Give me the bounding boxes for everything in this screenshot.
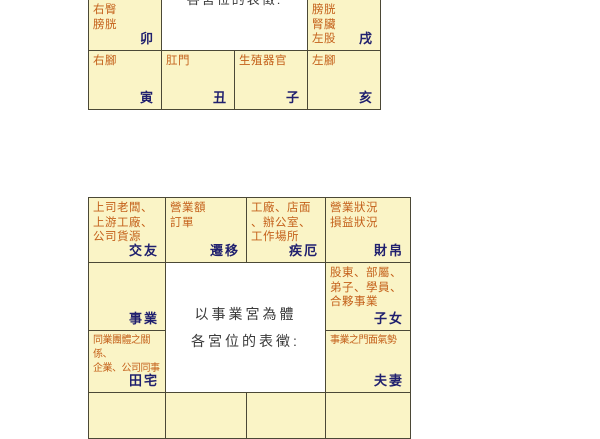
palace-cell-zi: 生殖器官 子 xyxy=(235,51,307,109)
chart-center-area-cut: 各宮位的表徵: xyxy=(162,0,307,50)
cell-content: 營業額 訂單 xyxy=(170,201,242,230)
palace-cell-jiaoyou: 上司老闆、 上游工廠、 公司貨源 交友 xyxy=(89,198,165,262)
branch-label-yin: 寅 xyxy=(140,87,155,106)
center-caption-line2: 各宮位的表徵: xyxy=(191,331,300,351)
palace-cell-tianzhai: 同業團體之關係、 企業、公司同事 田宅 xyxy=(89,331,165,392)
cell-content: 右腳 xyxy=(93,54,157,69)
career-palace-chart: 上司老闆、 上游工廠、 公司貨源 交友 營業額 訂單 遷移 工廠、店面 、辦公室… xyxy=(88,197,411,439)
cell-content: 事業之門面氣勢 xyxy=(330,334,406,348)
palace-cell-xu: 膀胱 腎臟 左股 戌 xyxy=(308,0,380,50)
cell-content: 股東、部屬、 弟子、學員、 合夥事業 xyxy=(330,266,406,310)
cell-content: 左腳 xyxy=(312,54,376,69)
palace-label-shiye: 事業 xyxy=(129,308,159,327)
palace-label-jiaoyou: 交友 xyxy=(129,240,159,259)
center-caption-cut: 各宮位的表徵: xyxy=(162,0,307,7)
cell-content: 生殖器官 xyxy=(239,54,303,69)
chart-center-caption: 以事業宮為體 各宮位的表徵: xyxy=(166,263,325,392)
palace-cell-qianyi: 營業額 訂單 遷移 xyxy=(166,198,246,262)
center-caption-line1: 以事業宮為體 xyxy=(195,304,297,324)
palace-cell-yin: 右腳 寅 xyxy=(89,51,161,109)
branch-label-chou: 丑 xyxy=(213,87,228,106)
palace-cell-chou: 肛門 丑 xyxy=(162,51,234,109)
palace-label-zinv: 子女 xyxy=(374,308,404,327)
branch-label-zi: 子 xyxy=(286,87,301,106)
palace-label-qianyi: 遷移 xyxy=(210,240,240,259)
palace-cell-shiye: 事業 xyxy=(89,263,165,330)
palace-cell-zinv: 股東、部屬、 弟子、學員、 合夥事業 子女 xyxy=(326,263,410,330)
palace-label-tianzhai: 田宅 xyxy=(129,370,159,389)
cell-content: 工廠、店面 、辦公室、 工作場所 xyxy=(251,201,321,245)
body-parts-chart: 右臀 膀胱 卯 各宮位的表徵: 膀胱 腎臟 左股 戌 右腳 寅 肛門 丑 生殖器… xyxy=(88,0,381,110)
palace-label-fuqi: 夫妻 xyxy=(374,370,404,389)
palace-cell-hai: 左腳 亥 xyxy=(308,51,380,109)
palace-cell-caibo: 營業狀況 損益狀況 財帛 xyxy=(326,198,410,262)
cell-content: 營業狀況 損益狀況 xyxy=(330,201,406,230)
palace-cell-mao: 右臀 膀胱 卯 xyxy=(89,0,161,50)
palace-cell-fuqi: 事業之門面氣勢 夫妻 xyxy=(326,331,410,392)
cell-content: 上司老闆、 上游工廠、 公司貨源 xyxy=(93,201,161,245)
branch-label-hai: 亥 xyxy=(359,87,374,106)
branch-label-xu: 戌 xyxy=(359,28,374,47)
cell-content: 肛門 xyxy=(166,54,230,69)
palace-cell-jie: 工廠、店面 、辦公室、 工作場所 疾厄 xyxy=(247,198,325,262)
palace-label-caibo: 財帛 xyxy=(374,240,404,259)
palace-label-jie: 疾厄 xyxy=(289,240,319,259)
branch-label-mao: 卯 xyxy=(140,28,155,47)
